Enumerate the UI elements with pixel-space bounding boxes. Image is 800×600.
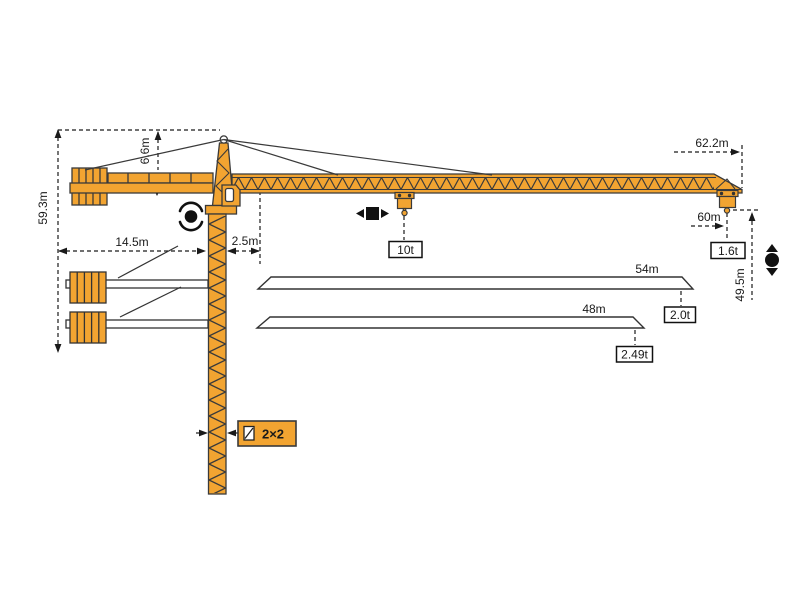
leader-line-1 [118, 246, 178, 278]
load-boxes [389, 242, 745, 363]
mast-section-icon [244, 427, 254, 441]
tip-capacity-62-label: 1.6t [718, 244, 739, 258]
tower-head-height-label: 6.6m [138, 138, 152, 165]
counter-jib-tie [85, 140, 224, 171]
cab-window [226, 189, 234, 202]
counter-jib-radius-label: 14.5m [115, 235, 148, 249]
tower-mast [206, 206, 237, 495]
total-height-label: 59.3m [36, 191, 50, 224]
max-jib-radius-label: 62.2m [695, 136, 728, 150]
leader-line-2 [120, 287, 181, 317]
ballast-stack-1 [70, 272, 106, 303]
mast-section-label: 2×2 [262, 427, 284, 442]
jib-option-54-label: 54m [635, 262, 658, 276]
hook-height-label: 49.5m [733, 268, 747, 301]
ballast-stack-2 [70, 312, 106, 343]
jib-tie-inner [224, 140, 338, 176]
turntable [206, 206, 237, 215]
max-capacity-label: 10t [397, 243, 414, 257]
counter-jib-top-blocks [108, 173, 213, 183]
tip-capacity-48-label: 2.49t [621, 348, 648, 362]
mid-hook [402, 210, 407, 215]
hoist-icon [765, 244, 779, 276]
counter-jib-beam [70, 183, 213, 193]
tip-radius-label: 60m [697, 210, 720, 224]
slewing-icon [180, 203, 202, 230]
jib-profile-54m [258, 277, 693, 289]
jib-options [257, 277, 693, 328]
operator-cab [222, 185, 240, 206]
tip-capacity-54-label: 2.0t [670, 308, 691, 322]
main-jib [232, 174, 742, 193]
tip-hook [724, 208, 729, 213]
crane-diagram: 59.3m 6.6m 14.5m 2.5m 62.2m 60m 49.5m 54… [0, 0, 800, 600]
mid-trolley [395, 193, 414, 216]
counter-jib [70, 168, 213, 205]
load-labels: 10t 1.6t 2.0t 2.49t [397, 243, 739, 362]
jib-option-48-label: 48m [582, 302, 605, 316]
jib-tie-outer [224, 140, 492, 176]
jib-profile-48m [257, 317, 644, 328]
counterweight-options [66, 246, 208, 343]
slew-offset-label: 2.5m [232, 234, 259, 248]
trolley-travel-icon [356, 207, 389, 220]
